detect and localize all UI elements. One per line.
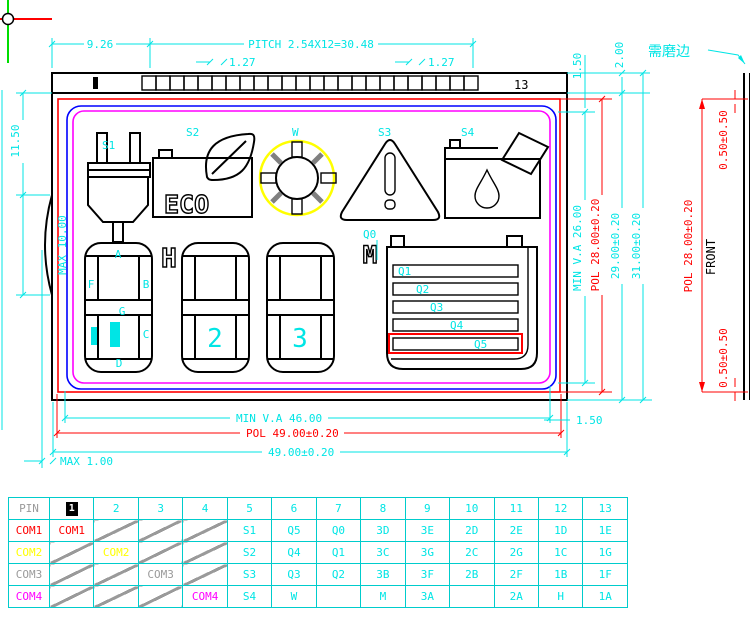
pin-header-3: 3: [138, 498, 182, 520]
segment-cell: 2F: [494, 564, 538, 586]
side-pol-dim: POL 28.00±0.20: [682, 200, 695, 293]
pin-header-9: 9: [405, 498, 449, 520]
dim-1-27-right: 1.27: [428, 56, 455, 69]
seg-a-label: A: [115, 248, 122, 261]
side-view: 需磨边 POL 28.00±0.20 0.50±0.50 0.50±0.50 F…: [648, 44, 750, 401]
dim-glass-49: 49.00±0.20: [268, 446, 334, 459]
lcd-drawing-page: 13 S1 ECO S2: [0, 0, 750, 636]
pin-header-10: 10: [450, 498, 494, 520]
seg-c-label: C: [143, 328, 150, 341]
pin-header-7: 7: [316, 498, 360, 520]
left-dimensions: 11.50 MAX 10.00: [9, 90, 69, 298]
segment-cell: H: [538, 586, 582, 608]
segment-cell: 1B: [538, 564, 582, 586]
pin-header-13: 13: [583, 498, 628, 520]
h-segment: H: [161, 244, 177, 274]
q1-label: Q1: [398, 265, 411, 278]
segment-cell: M: [361, 586, 405, 608]
pin-header-1: 1: [50, 498, 94, 520]
segment-cell: Q1: [316, 542, 360, 564]
dim-1-50-bottom: 1.50: [576, 414, 603, 427]
segment-cell: 1E: [583, 520, 628, 542]
segment-cell: 2B: [450, 564, 494, 586]
no-connect-cell: [50, 542, 94, 564]
segment-cell: 3A: [405, 586, 449, 608]
dim-2-00: 2.00: [613, 42, 626, 69]
w-label: W: [292, 126, 299, 139]
pin1-highlight: 1: [66, 502, 78, 516]
pin-header-6: 6: [272, 498, 316, 520]
seg-g-label: G: [119, 305, 126, 318]
com-cell-com4: COM4: [183, 586, 227, 608]
dim-1-50-top: 1.50: [571, 53, 584, 80]
pin-table-row-com4: COM4COM4S4WM3A2AH1A: [9, 586, 628, 608]
com-label-4: COM4: [9, 586, 50, 608]
com-label-3: COM3: [9, 564, 50, 586]
segment-cell: S2: [227, 542, 271, 564]
segment-cell: S4: [227, 586, 271, 608]
sun-icon: W: [260, 126, 336, 215]
dim-min-va-26: MIN V.A 26.00: [571, 205, 584, 291]
grind-edge-note: 需磨边: [648, 44, 690, 60]
digit1-bar: [110, 322, 120, 347]
q2-label: Q2: [416, 283, 429, 296]
m-segment: M: [363, 241, 377, 269]
com-label-1: COM1: [9, 520, 50, 542]
segment-cell: S3: [227, 564, 271, 586]
com-cell-com2: COM2: [94, 542, 138, 564]
dim-max-1: MAX 1.00: [60, 455, 113, 468]
digit2-label: 2: [207, 324, 223, 354]
digit3-label: 3: [292, 324, 308, 354]
dim-1-27-left: 1.27: [229, 56, 256, 69]
side-top-inset: 0.50±0.50: [717, 110, 730, 170]
pin-header-label: PIN: [9, 498, 50, 520]
segment-cell: 1A: [583, 586, 628, 608]
seg-b-label: B: [143, 278, 150, 291]
com-cell-com1: COM1: [50, 520, 94, 542]
dim-11-50: 11.50: [9, 124, 22, 157]
q5-label: Q5: [474, 338, 487, 351]
s4-label: S4: [461, 126, 475, 139]
segment-cell: 2C: [450, 542, 494, 564]
pin-table-row-com1: COM1COM1S1Q5Q03D3E2D2E1D1E: [9, 520, 628, 542]
pin-table-row-com3: COM3COM3S3Q3Q23B3F2B2F1B1F: [9, 564, 628, 586]
segment-cell: 1F: [583, 564, 628, 586]
pin-header-11: 11: [494, 498, 538, 520]
front-label: FRONT: [704, 239, 718, 275]
segment-cell: 3E: [405, 520, 449, 542]
oil-icon: S4: [445, 126, 548, 218]
segment-cell: 1C: [538, 542, 582, 564]
segment-cell: 2G: [494, 542, 538, 564]
no-connect-cell: [94, 586, 138, 608]
segment-cell: 2D: [450, 520, 494, 542]
seg-d-label: D: [116, 357, 123, 370]
empty-cell: [316, 586, 360, 608]
no-connect-cell: [183, 542, 227, 564]
ucs-origin-icon: [0, 0, 52, 63]
no-connect-cell: [138, 586, 182, 608]
dim-9-26: 9.26: [87, 38, 114, 51]
dim-pol-28: POL 28.00±0.20: [589, 199, 602, 292]
pin-contacts: [142, 76, 478, 90]
segment-cell: W: [272, 586, 316, 608]
dim-pol-49: POL 49.00±0.20: [246, 427, 339, 440]
q3-label: Q3: [430, 301, 443, 314]
warning-icon: S3: [341, 126, 439, 220]
segment-cell: 3G: [405, 542, 449, 564]
plug-icon: S1: [88, 133, 150, 242]
battery-gauge: Q1 Q2 Q3 Q4 Q5 Q0: [363, 228, 537, 369]
segment-cell: 1G: [583, 542, 628, 564]
dim-glass-29: 29.00±0.20: [609, 213, 622, 279]
q0-label: Q0: [363, 228, 376, 241]
side-bottom-inset: 0.50±0.50: [717, 328, 730, 388]
seg-e-marker: [91, 327, 97, 345]
dim-min-va-46: MIN V.A 46.00: [236, 412, 322, 425]
s3-label: S3: [378, 126, 391, 139]
eco-label: ECO: [164, 190, 209, 219]
no-connect-cell: [138, 542, 182, 564]
segment-cell: Q0: [316, 520, 360, 542]
pin-header-5: 5: [227, 498, 271, 520]
pin-connection-table: PIN12345678910111213COM1COM1S1Q5Q03D3E2D…: [8, 497, 628, 608]
seg-f-label: F: [88, 278, 95, 291]
pin-header-2: 2: [94, 498, 138, 520]
q4-label: Q4: [450, 319, 464, 332]
no-connect-cell: [94, 520, 138, 542]
pin-header-12: 12: [538, 498, 582, 520]
top-dimensions: 9.26 PITCH 2.54X12=30.48 1.27 1.27: [49, 38, 476, 69]
segment-cell: 3D: [361, 520, 405, 542]
segment-cell: 3B: [361, 564, 405, 586]
segment-cell: Q4: [272, 542, 316, 564]
pin-table: PIN12345678910111213COM1COM1S1Q5Q03D3E2D…: [8, 497, 628, 608]
segment-cell: 3C: [361, 542, 405, 564]
no-connect-cell: [138, 520, 182, 542]
s2-label: S2: [186, 126, 199, 139]
empty-cell: [450, 586, 494, 608]
segment-cell: Q5: [272, 520, 316, 542]
pin13-label: 13: [514, 78, 528, 92]
glass-bump: [45, 195, 52, 295]
cad-drawing: 13 S1 ECO S2: [0, 0, 750, 497]
dim-pitch: PITCH 2.54X12=30.48: [248, 38, 374, 51]
pin-header-8: 8: [361, 498, 405, 520]
segment-cell: Q2: [316, 564, 360, 586]
eco-battery-icon: ECO S2: [153, 126, 254, 219]
segment-cell: 2A: [494, 586, 538, 608]
digit1-labels: A F B G C D: [88, 248, 150, 370]
com-cell-com3: COM3: [138, 564, 182, 586]
segment-cell: Q3: [272, 564, 316, 586]
pin-table-header-row: PIN12345678910111213: [9, 498, 628, 520]
no-connect-cell: [50, 586, 94, 608]
no-connect-cell: [94, 564, 138, 586]
pin-header-4: 4: [183, 498, 227, 520]
pin-table-row-com2: COM2COM2S2Q4Q13C3G2C2G1C1G: [9, 542, 628, 564]
s1-label: S1: [102, 139, 115, 152]
com-label-2: COM2: [9, 542, 50, 564]
no-connect-cell: [50, 564, 94, 586]
segment-cell: 1D: [538, 520, 582, 542]
right-dimensions: 1.50 2.00 MIN V.A 26.00 POL 28.00±0.20 2…: [558, 42, 652, 403]
no-connect-cell: [183, 564, 227, 586]
segment-cell: S1: [227, 520, 271, 542]
segment-cell: 3F: [405, 564, 449, 586]
dim-total-31: 31.00±0.20: [630, 213, 643, 279]
dim-max-10: MAX 10.00: [56, 215, 69, 275]
segment-cell: 2E: [494, 520, 538, 542]
no-connect-cell: [183, 520, 227, 542]
